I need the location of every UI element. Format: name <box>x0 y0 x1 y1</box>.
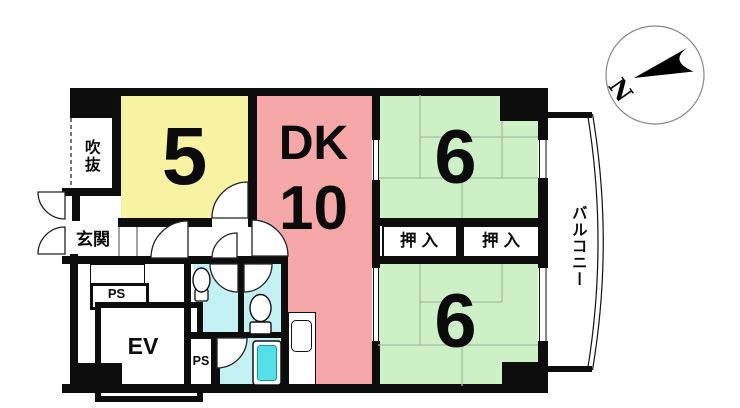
elevator-label: EV <box>101 308 185 384</box>
washbasin-icon <box>193 268 210 292</box>
door-arc-entry-upper <box>38 192 65 219</box>
ps-upper-label: PS <box>90 284 143 303</box>
compass-needle-icon <box>634 48 694 78</box>
bathtub-icon <box>258 346 277 381</box>
compass-north-label: N <box>603 73 639 108</box>
ps-lower-label: PS <box>188 350 214 372</box>
door-arc-toilet <box>244 264 272 292</box>
toilet-bowl-icon <box>250 295 271 322</box>
door-arc-bath <box>217 338 247 368</box>
genkan-step-lines <box>119 227 137 256</box>
door-arc-entry-lower <box>38 227 65 254</box>
dk-label: DK <box>255 112 372 176</box>
genkan-label: 玄関 <box>68 229 118 250</box>
closet-left-label: 押入 <box>382 225 456 257</box>
door-arc-hall-right <box>212 233 237 258</box>
compass: N <box>603 26 704 124</box>
room6-bottom-label: 6 <box>378 262 533 382</box>
closet-right-label: 押入 <box>462 225 540 257</box>
balcony-label: バルコニー <box>565 196 591 296</box>
floor-plan: N 吹抜 5 DK 10 6 6 押入 押入 玄関 PS EV PS バルコニー <box>0 0 740 408</box>
void-label: 吹抜 <box>79 126 103 186</box>
dk-size-label: 10 <box>255 170 372 248</box>
door-arc-hall-left <box>151 221 188 258</box>
room5-label: 5 <box>121 97 248 217</box>
toilet-tank-icon <box>250 322 271 334</box>
door-arc-washroom <box>210 264 238 292</box>
room6-top-label: 6 <box>378 98 533 218</box>
